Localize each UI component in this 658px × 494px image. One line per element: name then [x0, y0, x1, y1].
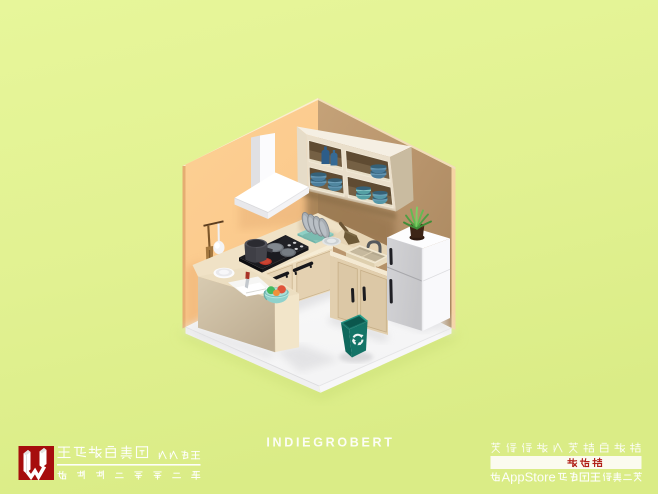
svg-text:INDIEGROBERT: INDIEGROBERT	[266, 436, 394, 450]
svg-text:AppStore: AppStore	[502, 470, 556, 485]
